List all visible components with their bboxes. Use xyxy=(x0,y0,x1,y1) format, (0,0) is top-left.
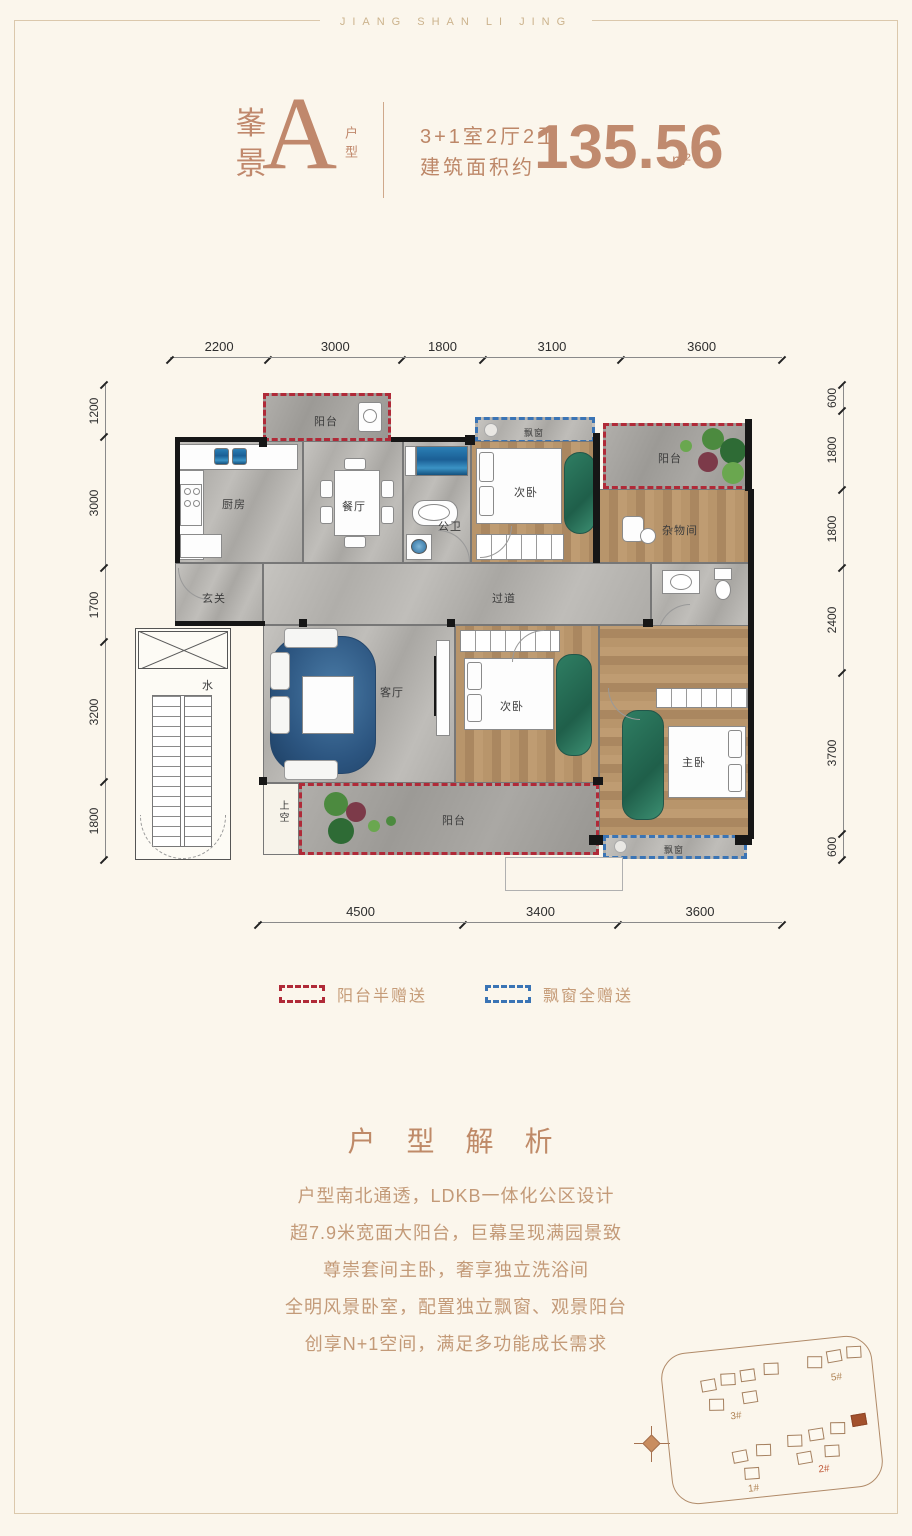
burner-icon xyxy=(184,488,191,495)
stairwell: 水 xyxy=(135,628,231,860)
room-master-bedroom: 主卧 xyxy=(599,625,751,837)
wall-column xyxy=(465,435,475,445)
red-dash-swatch xyxy=(279,985,325,1003)
analysis-body: 户型南北通透，LDKB一体化公区设计 超7.9米宽面大阳台，巨幕呈现满园景致 尊… xyxy=(0,1178,912,1363)
toilet-tank-icon xyxy=(714,568,732,580)
room-balcony-north: 阳台 xyxy=(263,393,391,441)
door-arc xyxy=(608,688,640,720)
plant-icon xyxy=(722,462,744,484)
wall-column xyxy=(643,619,653,627)
entry-door-arc xyxy=(178,568,210,600)
kitchen-sink-icon xyxy=(214,448,229,465)
shower-area-icon xyxy=(416,446,468,476)
washing-machine-door-icon xyxy=(363,409,377,423)
bed-pillow xyxy=(479,486,494,516)
wall-segment xyxy=(175,441,180,563)
building-icon xyxy=(742,1390,759,1404)
room-dining: 餐厅 xyxy=(303,441,403,563)
building-icon xyxy=(824,1445,840,1458)
dining-chair-icon xyxy=(320,480,333,498)
plant-icon xyxy=(614,840,627,853)
blue-dash-swatch xyxy=(485,985,531,1003)
room-living: 客厅 xyxy=(263,625,455,783)
building-icon xyxy=(808,1427,825,1441)
wall-column xyxy=(299,619,307,627)
dim-segment: 3100 xyxy=(483,338,621,358)
sofa-cushion xyxy=(270,696,290,734)
analysis-line: 尊崇套间主卧，奢享独立洗浴间 xyxy=(0,1252,912,1289)
dim-segment: 1800 xyxy=(822,411,844,489)
sofa-cushion xyxy=(270,652,290,690)
room-void: 上空 xyxy=(263,783,299,855)
wall-segment xyxy=(175,437,265,442)
coffee-table-icon xyxy=(302,676,354,734)
building-icon xyxy=(700,1378,717,1392)
dim-segment: 3600 xyxy=(621,338,782,358)
dim-segment: 1800 xyxy=(84,782,106,860)
rug-icon xyxy=(622,710,664,820)
building-icon xyxy=(787,1434,802,1447)
dim-segment: 3000 xyxy=(84,437,106,568)
analysis-line: 全明风景卧室，配置独立飘窗、观景阳台 xyxy=(0,1289,912,1326)
dim-row-top: 2200 3000 1800 3100 3600 xyxy=(170,338,782,358)
room-bedroom-north: 次卧 xyxy=(471,441,599,563)
dim-segment: 1800 xyxy=(402,338,482,358)
dim-segment: 3600 xyxy=(618,903,782,923)
analysis-line: 超7.9米宽面大阳台，巨幕呈现满园景致 xyxy=(0,1215,912,1252)
burner-icon xyxy=(184,500,191,507)
building-icon xyxy=(763,1363,778,1376)
building-icon xyxy=(796,1451,813,1465)
wall-segment xyxy=(745,419,752,491)
legend: 阳台半赠送 飘窗全赠送 xyxy=(0,982,912,1006)
bay-window-north: 飘窗 xyxy=(475,417,595,443)
plant-icon xyxy=(386,816,396,826)
building-icon xyxy=(720,1373,736,1386)
bed-pillow xyxy=(728,764,742,792)
dim-col-left: 1200 3000 1700 3200 1800 xyxy=(84,385,106,860)
door-arc xyxy=(438,530,470,562)
building-icon xyxy=(744,1467,760,1480)
plant-icon xyxy=(720,438,746,464)
wardrobe-icon xyxy=(460,630,560,652)
dim-segment: 600 xyxy=(822,834,844,860)
toilet-icon xyxy=(715,580,731,600)
rug-icon xyxy=(556,654,592,756)
area-value: 135.56 xyxy=(534,112,724,183)
room-bedroom-south: 次卧 xyxy=(455,625,599,783)
bay-window-south: 飘窗 xyxy=(603,835,747,859)
kitchen-cabinet xyxy=(180,534,222,558)
building-icon xyxy=(709,1399,724,1411)
dim-segment: 3400 xyxy=(463,903,618,923)
building-icon xyxy=(826,1349,843,1363)
brand-text: JIANG SHAN LI JING xyxy=(320,16,592,28)
sink-basin-icon xyxy=(670,574,692,590)
bath-cabinet xyxy=(405,446,416,476)
dim-segment: 1700 xyxy=(84,568,106,642)
room-kitchen: 厨房 xyxy=(175,441,303,563)
floor-plan: 阳台 厨房 餐厅 xyxy=(175,385,755,860)
dim-segment: 2400 xyxy=(822,568,844,673)
area-unit: m² xyxy=(672,152,691,170)
plant-icon xyxy=(698,452,718,472)
building-icon xyxy=(830,1422,845,1434)
tv-cabinet-icon xyxy=(436,640,450,736)
sink-basin-icon xyxy=(411,539,427,554)
room-balcony-northeast: 阳台 xyxy=(603,423,751,489)
analysis-line: 户型南北通透，LDKB一体化公区设计 xyxy=(0,1178,912,1215)
wall-column xyxy=(593,777,603,785)
plan-suffix: 户型 xyxy=(341,126,360,164)
wall-column xyxy=(589,835,603,845)
sofa-cushion xyxy=(284,628,338,648)
room-storage: 杂物间 xyxy=(599,489,751,563)
dim-row-bottom: 4500 3400 3600 xyxy=(258,903,782,923)
wardrobe-icon xyxy=(656,688,748,708)
building-icon xyxy=(807,1356,822,1368)
wall-segment xyxy=(593,433,600,563)
wall-segment xyxy=(748,489,754,681)
elevator-shaft xyxy=(138,631,228,669)
building-icon xyxy=(739,1368,756,1382)
highlighted-building-icon xyxy=(851,1413,868,1427)
dining-chair-icon xyxy=(381,480,394,498)
stair-turn-arc xyxy=(140,815,226,859)
building-icon xyxy=(846,1346,862,1359)
wall-column xyxy=(735,835,752,845)
dim-segment: 1800 xyxy=(822,490,844,568)
dim-col-right: 600 1800 1800 2400 3700 600 xyxy=(822,385,844,860)
sofa-cushion xyxy=(284,760,338,780)
bed-pillow xyxy=(479,452,494,482)
wall-column xyxy=(259,777,267,785)
plant-icon xyxy=(328,818,354,844)
ac-ledge xyxy=(505,857,623,891)
wall-column xyxy=(447,619,455,627)
building-icon xyxy=(732,1449,749,1464)
analysis-title: 户 型 解 析 xyxy=(0,1120,912,1160)
plan-letter: A xyxy=(262,82,337,186)
plant-icon xyxy=(484,423,498,437)
room-foyer: 玄关 xyxy=(175,563,263,625)
dim-segment: 3000 xyxy=(268,338,402,358)
site-boundary: 3# 5# 1# 2# xyxy=(659,1333,886,1506)
bed-pillow xyxy=(728,730,742,758)
dining-chair-icon xyxy=(344,458,366,470)
burner-icon xyxy=(193,488,200,495)
bed-pillow xyxy=(467,694,482,722)
burner-icon xyxy=(193,500,200,507)
dining-chair-icon xyxy=(320,506,333,524)
title-divider xyxy=(383,102,384,198)
legend-balcony-gift: 阳台半赠送 xyxy=(279,982,427,1006)
dim-segment: 1200 xyxy=(84,385,106,437)
wall-column xyxy=(259,437,267,447)
room-corridor: 过道 xyxy=(263,563,651,625)
brand-header: JIANG SHAN LI JING xyxy=(0,12,912,30)
dim-segment: 600 xyxy=(822,385,844,411)
plant-icon xyxy=(680,440,692,452)
site-plan: 3# 5# 1# 2# xyxy=(640,1338,896,1520)
wall-segment xyxy=(748,681,754,839)
dim-segment: 3700 xyxy=(822,673,844,834)
compass-diamond xyxy=(642,1434,660,1452)
plant-icon xyxy=(368,820,380,832)
room-balcony-south: 阳台 xyxy=(299,783,599,855)
building-icon xyxy=(756,1444,771,1457)
compass-icon xyxy=(634,1426,670,1462)
plant-icon xyxy=(346,802,366,822)
kitchen-sink-icon xyxy=(232,448,247,465)
dim-segment: 3200 xyxy=(84,642,106,781)
tv-icon xyxy=(434,656,436,716)
dining-chair-icon xyxy=(344,536,366,548)
table-icon xyxy=(640,528,656,544)
room-guest-bath: 公卫 xyxy=(403,441,471,563)
dining-chair-icon xyxy=(381,506,394,524)
dim-segment: 2200 xyxy=(170,338,268,358)
brochure-page: JIANG SHAN LI JING 峯 景 A 户型 3+1室2厅2卫 建筑面… xyxy=(0,0,912,1536)
legend-bay-gift: 飘窗全赠送 xyxy=(485,982,633,1006)
wall-segment xyxy=(175,621,265,626)
wall-segment xyxy=(391,437,475,442)
bed-pillow xyxy=(467,662,482,690)
plant-icon xyxy=(324,792,348,816)
rug-icon xyxy=(564,452,596,534)
dim-segment: 4500 xyxy=(258,903,463,923)
